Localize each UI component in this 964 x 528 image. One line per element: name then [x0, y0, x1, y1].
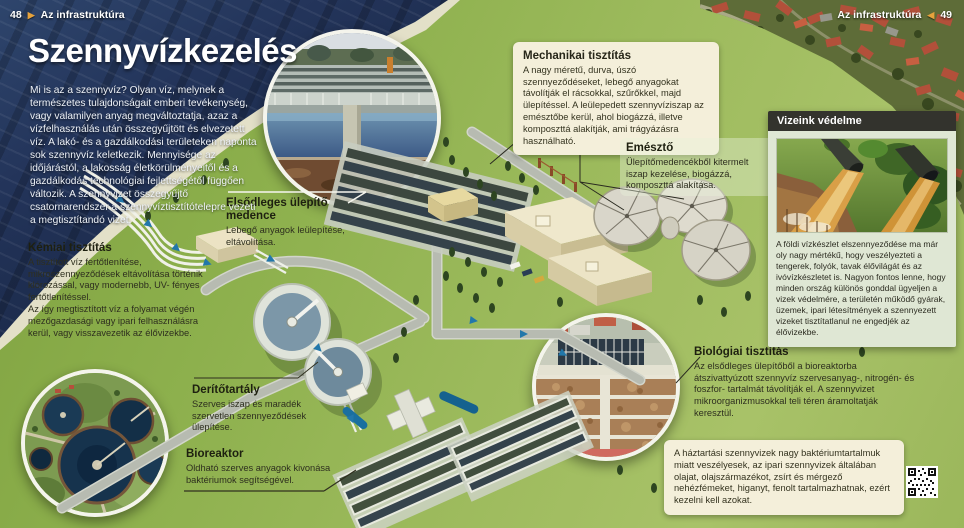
callout-title: Emésztő — [626, 142, 768, 155]
callout-body: Ülepítőmedencékből kitermelt iszap kezel… — [626, 157, 768, 192]
polluted-outfall-photo — [776, 138, 948, 233]
page-number-left: 48 — [10, 9, 22, 21]
sidebar-water-protection: Vizeink védelme — [768, 111, 956, 347]
triangle-left-icon: ◀ — [927, 10, 934, 21]
callout-chemical-treatment: Kémiai tisztítás A tisztított víz fertőt… — [28, 242, 212, 339]
qr-code — [906, 466, 938, 498]
callout-biological-treatment: Biológiai tisztítás Az elsődleges ülepít… — [694, 346, 916, 420]
callout-body: A nagy méretű, durva, úszó szennyeződése… — [523, 65, 709, 148]
callout-digester: Emésztő Ülepítőmedencékből kitermelt isz… — [620, 138, 774, 196]
sidebar-title: Vizeink védelme — [768, 111, 956, 131]
intro-paragraph: Mi is az a szennyvíz? Olyan víz, melynek… — [30, 84, 258, 228]
cars — [510, 261, 545, 283]
section-title-left: Az infrastruktúra — [41, 9, 125, 21]
sidebar-body: A földi vízkészlet elszennyeződése ma má… — [776, 239, 948, 338]
section-title-right: Az infrastruktúra — [837, 9, 921, 21]
callout-body: Szerves iszap és maradék szervetlen szen… — [192, 399, 320, 434]
callout-body: Lebegő anyagok leülepítése, eltávolítása… — [226, 225, 348, 249]
callout-bioreactor: Bioreaktor Oldható szerves anyagok kivon… — [186, 448, 338, 486]
callout-title: Biológiai tisztítás — [694, 346, 916, 359]
page-number-right: 49 — [940, 9, 952, 21]
callout-settling-tank: Derítőtartály Szerves iszap és maradék s… — [192, 384, 320, 434]
page-title: Szennyvízkezelés — [28, 32, 297, 70]
callout-body: A tisztított víz fertőtlenítése, mikrosz… — [28, 257, 212, 340]
callout-body: Az elsődleges ülepítőből a bioreaktorba … — [694, 361, 916, 420]
callout-title: Bioreaktor — [186, 448, 338, 461]
triangle-right-icon: ▶ — [28, 10, 35, 21]
page-header-left: 48 ▶ Az infrastruktúra — [10, 9, 125, 21]
callout-title: Mechanikai tisztítás — [523, 50, 709, 63]
callout-body: Oldható szerves anyagok kivonása baktéri… — [186, 463, 338, 487]
note-body: A háztartási szennyvizek nagy baktériumt… — [674, 448, 894, 507]
page-header-right: Az infrastruktúra ◀ 49 — [837, 9, 952, 21]
callout-title: Kémiai tisztítás — [28, 242, 212, 255]
book-spread: 48 ▶ Az infrastruktúra Az infrastruktúra… — [0, 0, 964, 528]
callout-title: Derítőtartály — [192, 384, 320, 397]
note-box-household-wastewater: A háztartási szennyvizek nagy baktériumt… — [664, 440, 904, 515]
